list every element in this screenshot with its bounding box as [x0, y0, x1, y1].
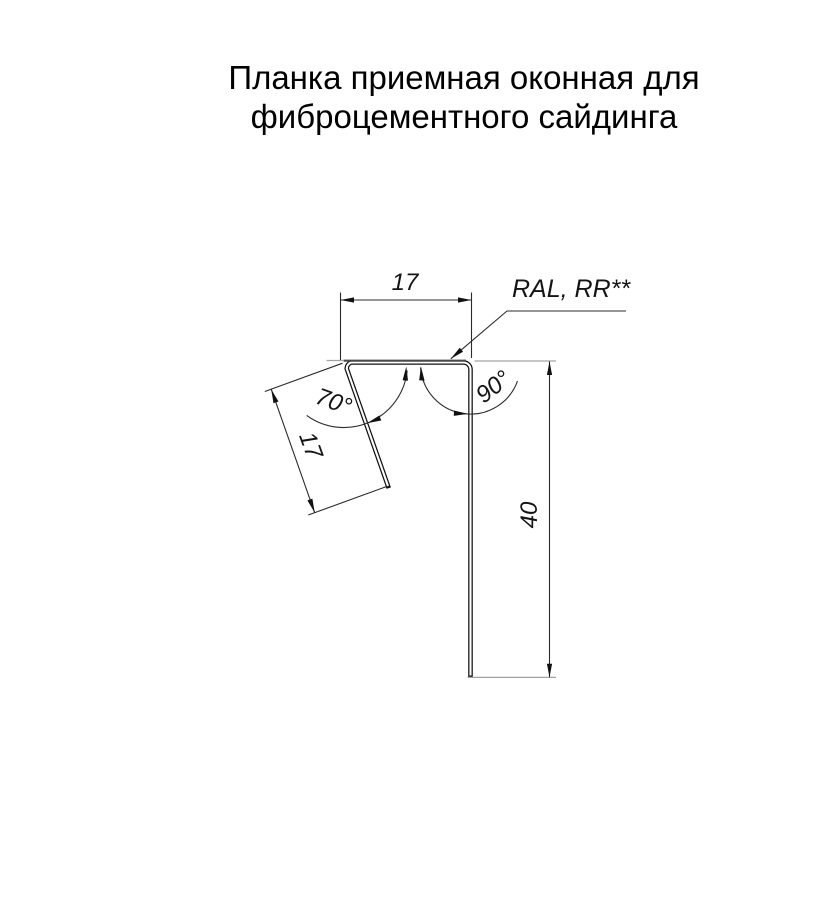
profile-outline [347, 363, 471, 676]
title-line-1: Планка приемная оконная для [228, 59, 699, 96]
arrowhead-right [458, 297, 472, 302]
dimension-value-flange-length: 17 [293, 428, 328, 464]
arrowhead-lower [307, 499, 314, 513]
arrowhead-at-leg [454, 411, 468, 416]
arrowhead-at-top-bar [419, 367, 424, 381]
arrowhead-upper [271, 389, 278, 403]
arrowhead-top [547, 362, 552, 376]
drawing-canvas: Планка приемная оконная для фиброцементн… [0, 0, 832, 900]
dimension-height: 40 [516, 362, 552, 678]
drawing-title: Планка приемная оконная для фиброцементн… [228, 59, 699, 135]
dimension-value-height: 40 [516, 501, 543, 528]
angle-value-90: 90° [471, 365, 517, 409]
title-line-2: фиброцементного сайдинга [251, 98, 678, 135]
arrowhead-left [341, 297, 355, 302]
dimension-top-width: 17 [341, 269, 472, 360]
arrowhead-bottom [547, 664, 552, 678]
extension-line [308, 487, 386, 515]
profile-section [344, 361, 471, 676]
coating-leader: RAL, RR** [451, 275, 632, 359]
angle-value-70: 70° [312, 383, 356, 421]
leader-line [451, 311, 626, 359]
profile-core [347, 363, 471, 676]
dimension-value-top-width: 17 [392, 269, 420, 296]
arrowhead-at-flange [367, 416, 381, 424]
technical-drawing: Планка приемная оконная для фиброцементн… [0, 0, 832, 900]
coating-label: RAL, RR** [512, 275, 631, 303]
